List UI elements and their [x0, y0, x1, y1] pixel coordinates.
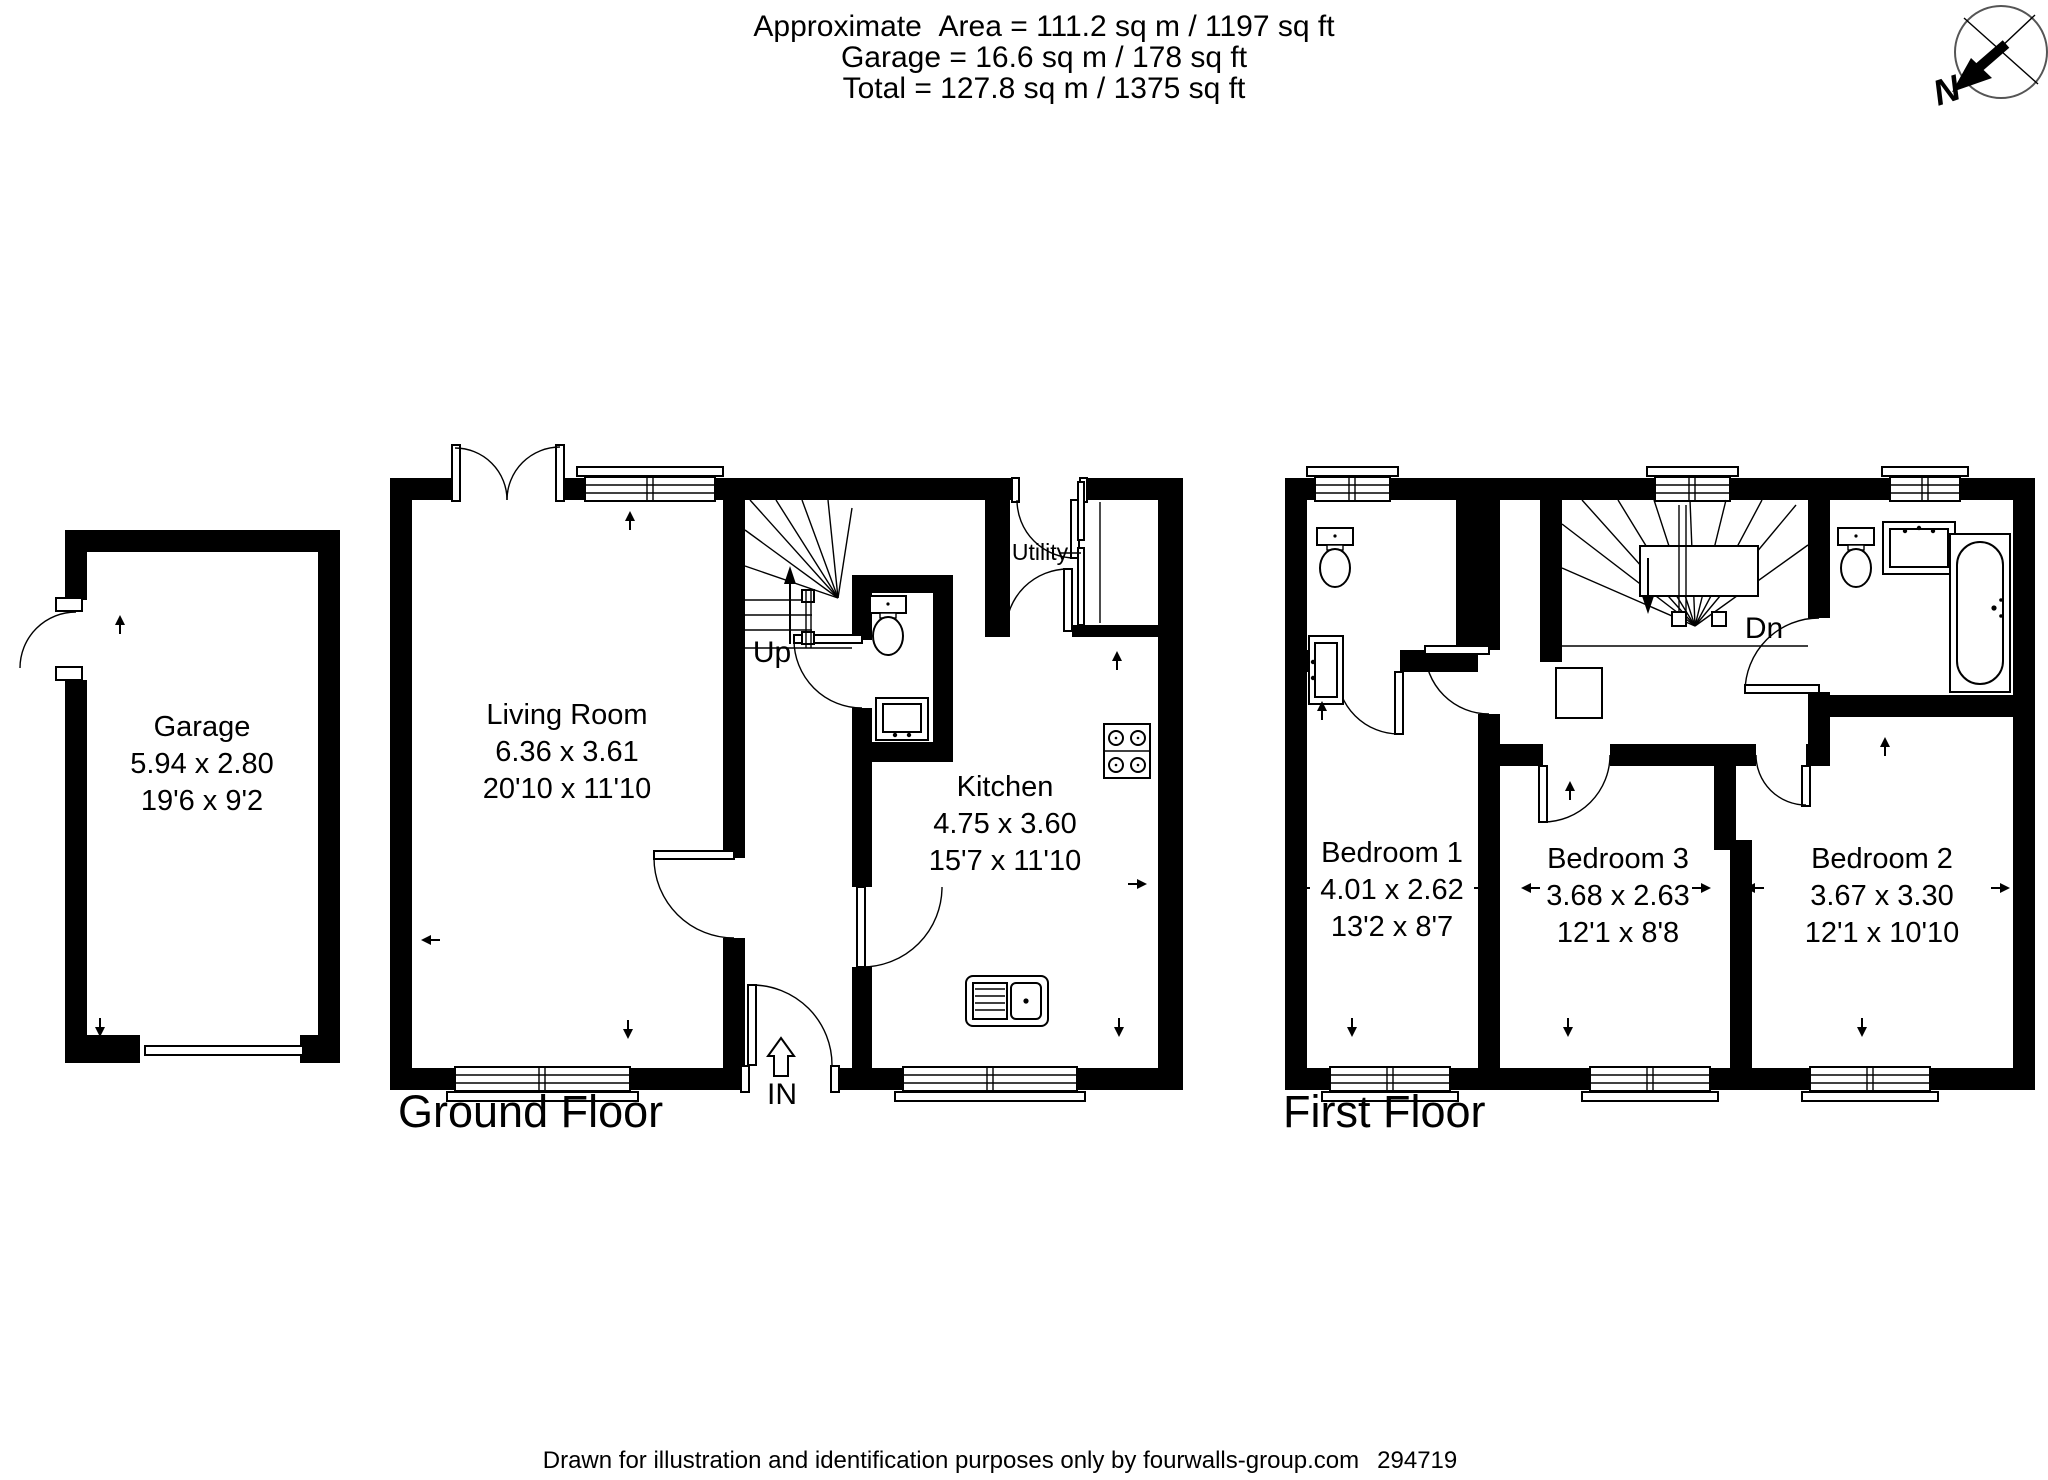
- living-room-size-imperial: 20'10 x 11'10: [483, 773, 652, 805]
- entrance-arrow-icon: [768, 1038, 794, 1076]
- window: [1647, 467, 1738, 501]
- bedroom1-size-imperial: 13'2 x 8'7: [1331, 911, 1453, 943]
- window: [1882, 467, 1968, 501]
- living-room-label: Living Room 6.36 x 3.61 20'10 x 11'10: [483, 699, 652, 805]
- header: Approximate Area = 111.2 sq m / 1197 sq …: [753, 10, 1335, 105]
- bedroom3-label: Bedroom 3 3.68 x 2.63 12'1 x 8'8: [1546, 843, 1690, 949]
- bath-icon: [1950, 534, 2010, 692]
- bedroom2-size-metric: 3.67 x 3.30: [1810, 880, 1954, 912]
- first-floor-doors: [1337, 618, 1819, 822]
- kitchen-size-imperial: 15'7 x 11'10: [929, 845, 1081, 877]
- entrance: IN: [767, 1038, 797, 1111]
- compass-icon: N: [1928, 6, 2047, 114]
- wc-door: [794, 635, 862, 708]
- window: [1802, 1067, 1938, 1101]
- front-door: [741, 985, 839, 1092]
- window: [895, 1067, 1085, 1101]
- first-floor-title: First Floor: [1283, 1086, 1486, 1137]
- survey-pin: [95, 1018, 105, 1037]
- living-room-size-metric: 6.36 x 3.61: [495, 736, 639, 768]
- garage-side-door-frame: [56, 598, 82, 611]
- kitchen-label: Kitchen 4.75 x 3.60 15'7 x 11'10: [929, 771, 1081, 877]
- down-arrow-icon: [1642, 596, 1654, 614]
- window: [577, 467, 723, 501]
- approximate-area-text: Approximate Area = 111.2 sq m / 1197 sq …: [753, 10, 1335, 43]
- garage-name: Garage: [154, 711, 251, 743]
- garage-area-text: Garage = 16.6 sq m / 178 sq ft: [841, 41, 1248, 74]
- living-room-name: Living Room: [486, 699, 647, 731]
- bedroom3-size-imperial: 12'1 x 8'8: [1557, 917, 1679, 949]
- up-arrow-icon: [784, 566, 796, 584]
- footer-disclaimer: Drawn for illustration and identificatio…: [543, 1447, 1458, 1474]
- shower-room-door: [1337, 672, 1403, 734]
- bedroom1-label: Bedroom 1 4.01 x 2.62 13'2 x 8'7: [1320, 837, 1464, 943]
- footer-reference: 294719: [1377, 1447, 1457, 1474]
- dn-label: Dn: [1745, 612, 1783, 645]
- toilet-icon: [870, 596, 906, 655]
- toilet-icon: [1317, 528, 1353, 587]
- bedroom3-name: Bedroom 3: [1547, 843, 1689, 875]
- garage-label: Garage 5.94 x 2.80 19'6 x 9'2: [130, 711, 274, 817]
- entrance-label: IN: [767, 1078, 797, 1111]
- up-label: Up: [753, 636, 791, 669]
- french-doors: [452, 445, 564, 501]
- kitchen-size-metric: 4.75 x 3.60: [933, 808, 1077, 840]
- floorplan-canvas: Approximate Area = 111.2 sq m / 1197 sq …: [0, 0, 2048, 1480]
- living-room-door: [654, 851, 734, 938]
- window: [1582, 1067, 1718, 1101]
- bedroom1-name: Bedroom 1: [1321, 837, 1463, 869]
- ground-floor-title: Ground Floor: [398, 1086, 663, 1137]
- kitchen-door: [857, 887, 942, 967]
- kitchen-name: Kitchen: [957, 771, 1054, 803]
- garage-size-imperial: 19'6 x 9'2: [141, 785, 263, 817]
- survey-pin: [115, 615, 125, 634]
- landing-cupboard: [1556, 668, 1602, 718]
- utility-inner-door: [1006, 569, 1072, 631]
- bedroom3-size-metric: 3.68 x 2.63: [1546, 880, 1690, 912]
- sink-icon: [966, 976, 1048, 1026]
- hob-icon: [1104, 724, 1150, 778]
- bedroom2-name: Bedroom 2: [1811, 843, 1953, 875]
- garage-side-door-frame: [56, 667, 82, 680]
- bedroom2-label: Bedroom 2 3.67 x 3.30 12'1 x 10'10: [1805, 843, 1960, 949]
- bedroom3-door: [1539, 755, 1610, 822]
- bedroom2-size-imperial: 12'1 x 10'10: [1805, 917, 1960, 949]
- toilet-icon: [1838, 528, 1874, 587]
- total-area-text: Total = 127.8 sq m / 1375 sq ft: [843, 72, 1246, 105]
- garage-door: [145, 1046, 303, 1055]
- basin-icon: [876, 698, 928, 740]
- bedroom1-size-metric: 4.01 x 2.62: [1320, 874, 1464, 906]
- window: [1307, 467, 1398, 501]
- garage-side-door-arc: [20, 612, 76, 668]
- garage-plan: Garage 5.94 x 2.80 19'6 x 9'2: [20, 530, 340, 1063]
- garage-size-metric: 5.94 x 2.80: [130, 748, 274, 780]
- utility-label: Utility: [1012, 539, 1069, 565]
- vanity-basin-icon: [1883, 522, 1955, 574]
- footer-disclaimer-text: Drawn for illustration and identificatio…: [543, 1447, 1359, 1474]
- bedroom2-door: [1756, 755, 1810, 806]
- basin-icon: [1309, 636, 1343, 704]
